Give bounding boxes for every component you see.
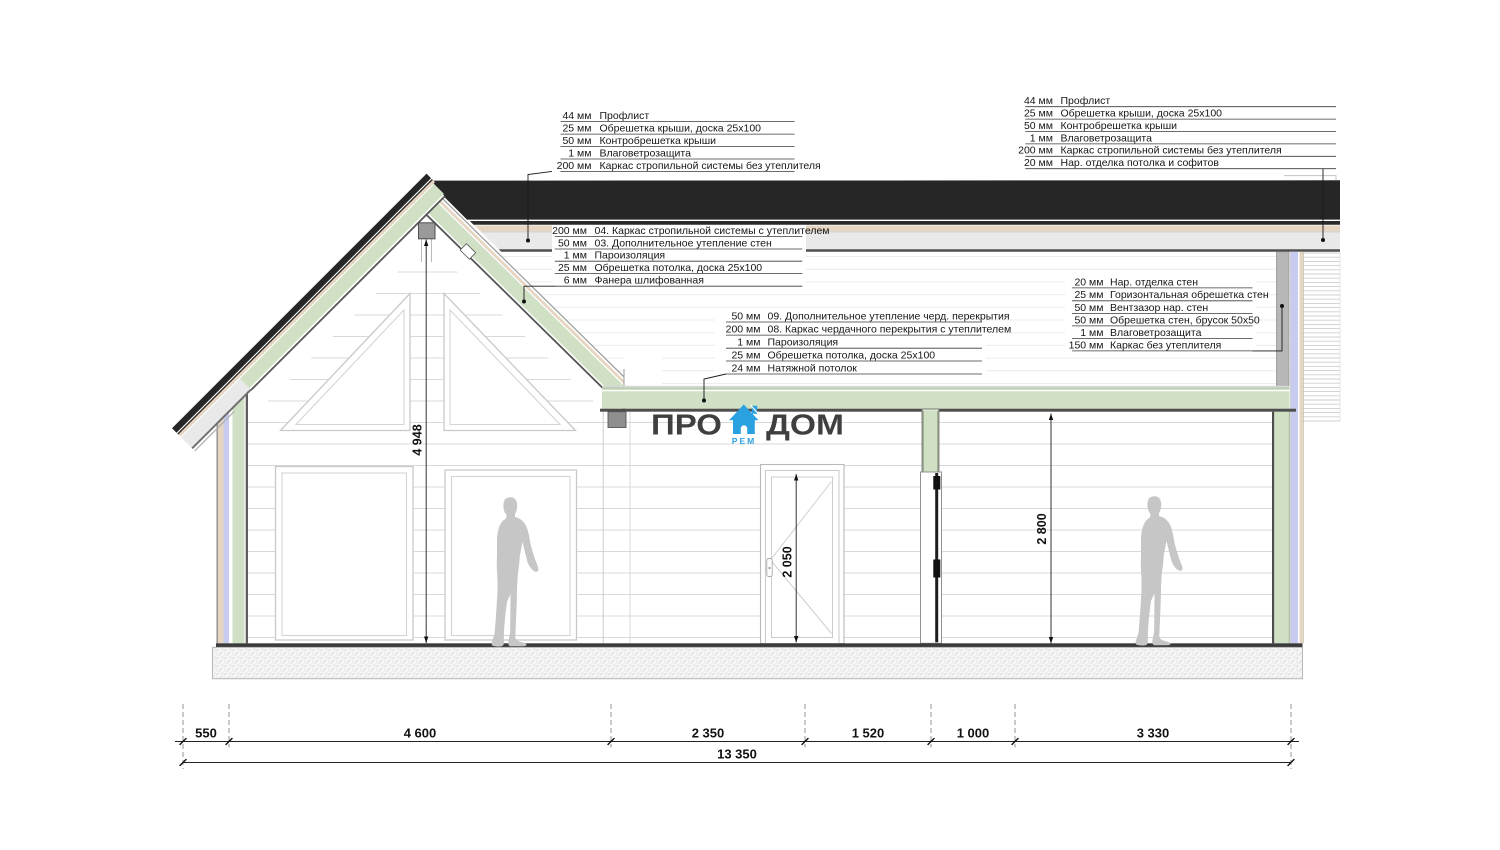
svg-text:РЕМ: РЕМ <box>732 436 756 446</box>
svg-text:1 мм: 1 мм <box>568 147 591 159</box>
svg-text:Нар. отделка потолка и софитов: Нар. отделка потолка и софитов <box>1061 157 1220 169</box>
svg-text:Каркас стропильной системы без: Каркас стропильной системы без утеплител… <box>1061 145 1282 157</box>
svg-text:Профлист: Профлист <box>600 110 650 122</box>
svg-text:25 мм: 25 мм <box>558 262 587 274</box>
svg-text:25 мм: 25 мм <box>562 123 591 135</box>
svg-text:50 мм: 50 мм <box>731 310 760 322</box>
svg-text:2 350: 2 350 <box>692 726 725 741</box>
svg-text:Пароизоляция: Пароизоляция <box>768 337 839 349</box>
svg-text:1 мм: 1 мм <box>737 337 760 349</box>
svg-text:Влаговетрозащита: Влаговетрозащита <box>1061 132 1153 144</box>
svg-text:ПРО: ПРО <box>651 410 722 442</box>
svg-text:3 330: 3 330 <box>1137 726 1170 741</box>
svg-text:Профлист: Профлист <box>1061 95 1111 107</box>
svg-text:1 мм: 1 мм <box>1080 327 1103 339</box>
svg-text:150 мм: 150 мм <box>1069 339 1104 351</box>
svg-text:Обрешетка стен, брусок 50х50: Обрешетка стен, брусок 50х50 <box>1110 314 1260 326</box>
svg-text:Обрешетка крыши, доска 25х100: Обрешетка крыши, доска 25х100 <box>1061 108 1223 120</box>
svg-text:Каркас стропильной системы без: Каркас стропильной системы без утеплител… <box>600 160 821 172</box>
svg-text:ДОМ: ДОМ <box>766 410 844 442</box>
svg-text:Контробрешетка крыши: Контробрешетка крыши <box>1061 120 1178 132</box>
svg-text:25 мм: 25 мм <box>1024 108 1053 120</box>
svg-text:50 мм: 50 мм <box>1074 302 1103 314</box>
svg-text:50 мм: 50 мм <box>562 135 591 147</box>
svg-text:200 мм: 200 мм <box>726 324 761 336</box>
svg-text:50 мм: 50 мм <box>1024 120 1053 132</box>
svg-text:04. Каркас стропильной системы: 04. Каркас стропильной системы с утеплит… <box>595 225 830 237</box>
svg-text:6 мм: 6 мм <box>564 275 587 287</box>
svg-text:08. Каркас чердачного перекрыт: 08. Каркас чердачного перекрытия с утепл… <box>768 324 1012 336</box>
svg-text:20 мм: 20 мм <box>1074 276 1103 288</box>
svg-text:Контробрешетка крыши: Контробрешетка крыши <box>600 135 717 147</box>
svg-text:Каркас без утеплителя: Каркас без утеплителя <box>1110 339 1221 351</box>
svg-text:1 мм: 1 мм <box>564 250 587 262</box>
svg-text:Пароизоляция: Пароизоляция <box>595 250 666 262</box>
svg-text:44 мм: 44 мм <box>1024 95 1053 107</box>
svg-text:4 600: 4 600 <box>404 726 437 741</box>
svg-text:2 800: 2 800 <box>1035 513 1049 544</box>
svg-text:Обрешетка крыши, доска 25х100: Обрешетка крыши, доска 25х100 <box>600 123 762 135</box>
svg-text:Обрешетка потолка, доска 25х10: Обрешетка потолка, доска 25х100 <box>768 349 936 361</box>
svg-text:Натяжной потолок: Натяжной потолок <box>768 362 858 374</box>
svg-text:Влаговетрозащита: Влаговетрозащита <box>600 147 692 159</box>
svg-text:200 мм: 200 мм <box>552 225 587 237</box>
svg-text:24 мм: 24 мм <box>731 362 760 374</box>
svg-text:2 050: 2 050 <box>781 546 795 577</box>
svg-text:25 мм: 25 мм <box>731 349 760 361</box>
svg-text:200 мм: 200 мм <box>1018 145 1053 157</box>
svg-text:13 350: 13 350 <box>717 747 757 762</box>
svg-text:03. Дополнительное утепление с: 03. Дополнительное утепление стен <box>595 237 772 249</box>
svg-text:Влаговетрозащита: Влаговетрозащита <box>1110 327 1202 339</box>
svg-text:4 948: 4 948 <box>411 424 425 455</box>
svg-text:50 мм: 50 мм <box>1074 314 1103 326</box>
svg-text:1 000: 1 000 <box>957 726 990 741</box>
svg-text:44 мм: 44 мм <box>562 110 591 122</box>
svg-text:Обрешетка потолка, доска 25х10: Обрешетка потолка, доска 25х100 <box>595 262 763 274</box>
svg-text:550: 550 <box>195 726 217 741</box>
svg-text:Горизонтальная обрешетка стен: Горизонтальная обрешетка стен <box>1110 289 1269 301</box>
svg-text:50 мм: 50 мм <box>558 237 587 249</box>
svg-text:25 мм: 25 мм <box>1074 289 1103 301</box>
svg-text:20 мм: 20 мм <box>1024 157 1053 169</box>
svg-text:Вентзазор нар. стен: Вентзазор нар. стен <box>1110 302 1208 314</box>
svg-text:09. Дополнительное утепление ч: 09. Дополнительное утепление черд. перек… <box>768 310 1010 322</box>
svg-text:1 520: 1 520 <box>852 726 885 741</box>
svg-text:1 мм: 1 мм <box>1030 132 1053 144</box>
svg-text:200 мм: 200 мм <box>557 160 592 172</box>
svg-text:Фанера шлифованная: Фанера шлифованная <box>595 275 704 287</box>
svg-text:Нар. отделка стен: Нар. отделка стен <box>1110 276 1198 288</box>
